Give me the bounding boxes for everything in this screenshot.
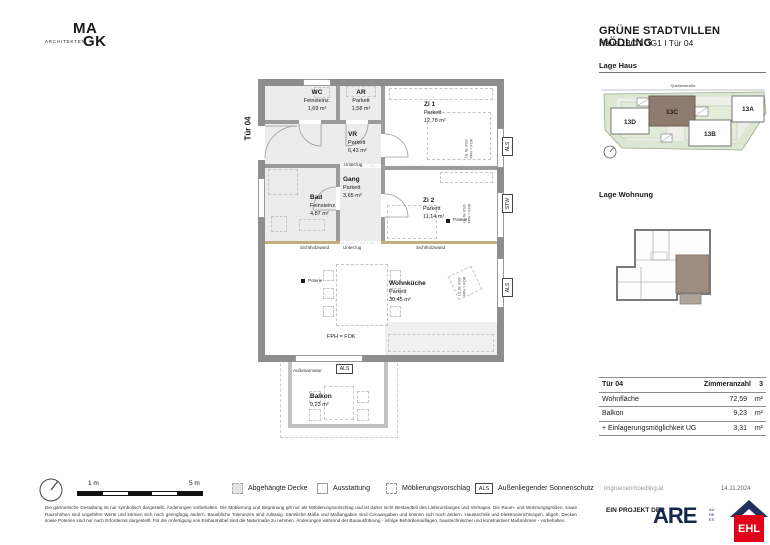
room-area: 30,45 m² bbox=[389, 296, 459, 304]
magk-logo-gk: GK bbox=[83, 35, 107, 48]
table-door-label: Tür 04 bbox=[602, 381, 704, 388]
unit-location-plan bbox=[607, 222, 727, 312]
window-note-line2: FPH = FOK bbox=[468, 194, 473, 234]
scale-segment bbox=[177, 492, 202, 495]
room-label-wohnkueche: Wohnküche Parkett 30,45 m² bbox=[389, 280, 459, 304]
table-rooms-value: 3 bbox=[751, 381, 763, 388]
wall-interior bbox=[265, 164, 340, 168]
row-label: + Einlagerungsmöglichkeit UG bbox=[602, 425, 717, 432]
room-label-gang: Gang Parkett 3,65 m² bbox=[343, 176, 393, 200]
legend-als-box: ALS bbox=[475, 483, 493, 494]
sichtholzwand-label: Sichtholzwand bbox=[416, 245, 445, 250]
row-value: 72,59 bbox=[717, 396, 747, 403]
furniture-bathtub bbox=[268, 169, 298, 195]
scale-segment bbox=[128, 492, 153, 495]
scale-segment bbox=[103, 492, 128, 495]
room-name: WC bbox=[294, 89, 340, 97]
window-note-line2: FPH = FOK bbox=[470, 129, 475, 169]
furniture-washing-machine bbox=[271, 216, 287, 232]
room-area: 6,43 m² bbox=[348, 147, 398, 155]
furniture-dining-table bbox=[336, 264, 388, 326]
wall-exterior-top bbox=[258, 79, 504, 86]
room-name: Wohnküche bbox=[389, 280, 459, 288]
column-marker bbox=[301, 279, 305, 283]
are-logo: ARE AU RE ES bbox=[653, 503, 733, 535]
aussenarmatur-label: Außenarmatur bbox=[293, 368, 322, 373]
room-floor: Parkett bbox=[424, 109, 484, 117]
room-area: 1,69 m² bbox=[294, 105, 340, 113]
room-floor: Parkett bbox=[389, 288, 459, 296]
compass-needle bbox=[51, 481, 58, 490]
row-value: 3,31 bbox=[717, 425, 747, 432]
site-plan: Quellenstraße 13D 13C 13B 13A bbox=[597, 80, 769, 162]
room-name: VR bbox=[348, 131, 398, 139]
room-area: 4,87 m² bbox=[310, 210, 365, 218]
scale-segment bbox=[152, 492, 177, 495]
unterzug-label: Unterzug bbox=[344, 162, 362, 167]
balcony-glass-door bbox=[295, 355, 363, 362]
sichtholzwand-label: Sichtholzwand bbox=[300, 245, 329, 250]
als-box: ALS bbox=[502, 278, 513, 297]
table-row: Balkon 9,23 m² bbox=[599, 406, 766, 421]
room-name: Zi 1 bbox=[424, 101, 484, 109]
are-logo-subtext: AU RE ES bbox=[709, 507, 715, 522]
building-label-13a: 13A bbox=[742, 106, 754, 113]
room-area: 9,23 m² bbox=[310, 401, 360, 409]
scale-label-5m: 5 m bbox=[189, 480, 200, 487]
stw-box: STW bbox=[502, 194, 513, 213]
door-gap-entrance bbox=[258, 126, 265, 160]
table-row: Wohnfläche 72,59 m² bbox=[599, 392, 766, 407]
legend-label-ausstattung: Ausstattung bbox=[333, 485, 370, 492]
furniture-chair bbox=[390, 306, 401, 317]
room-floor: Feinsteinz. bbox=[294, 97, 340, 105]
furniture-chair bbox=[309, 409, 321, 421]
furniture-shelf bbox=[440, 172, 493, 183]
window-note: UL fix VSG FPH = FOK bbox=[465, 129, 478, 169]
disclaimer-text: Die gärtnerische Gestaltung ist nur symb… bbox=[45, 505, 577, 525]
lage-haus-divider bbox=[599, 72, 766, 73]
street-label: Quellenstraße bbox=[670, 83, 696, 88]
building-label-13c: 13C bbox=[666, 109, 678, 116]
legend-label-sonnenschutz: Außenliegender Sonnenschutz bbox=[498, 485, 594, 492]
table-rooms-label: Zimmeranzahl bbox=[704, 381, 751, 388]
furniture-wardrobe bbox=[389, 88, 493, 100]
wall-interior bbox=[381, 166, 497, 170]
furniture-kitchen-counter bbox=[388, 334, 494, 352]
magk-logo: MA GK ARCHITEKTEN bbox=[45, 22, 165, 58]
table-header-row: Tür 04 Zimmeranzahl 3 bbox=[599, 377, 766, 392]
sichtholzwand-wall bbox=[265, 241, 340, 244]
legend-swatch-ausstattung bbox=[317, 483, 328, 494]
page-subtitle: Haus 13C I OG1 I Tür 04 bbox=[599, 38, 693, 48]
magk-logo-architekten: ARCHITEKTEN bbox=[45, 39, 86, 44]
furniture-washbasin bbox=[299, 219, 325, 231]
als-box: ALS bbox=[336, 364, 353, 374]
unit-highlight bbox=[676, 255, 709, 293]
legend-label-moeblierung: Möblierungsvorschlag bbox=[402, 485, 470, 492]
unit-door-label: Tür 04 bbox=[244, 108, 257, 150]
website-text: imgruenenmoedling.at bbox=[604, 486, 663, 492]
room-name: AR bbox=[338, 89, 384, 97]
room-label-balkon: Balkon 9,23 m² bbox=[310, 393, 360, 409]
room-name: Balkon bbox=[310, 393, 360, 401]
sichtholzwand-wall bbox=[381, 241, 497, 244]
window-note: UL fix VSG FPH = FOK bbox=[463, 194, 476, 234]
room-floor: Parkett bbox=[348, 139, 398, 147]
row-value: 9,23 bbox=[717, 410, 747, 417]
als-box: ALS bbox=[502, 137, 513, 156]
compass-needle bbox=[610, 147, 614, 152]
are-logo-text: ARE bbox=[653, 503, 696, 529]
room-area: 3,65 m² bbox=[343, 192, 393, 200]
room-floor: Parkett bbox=[343, 184, 393, 192]
room-label-zi1: Zi 1 Parkett 12,78 m² bbox=[424, 101, 484, 125]
unterzug-label: Unterzug bbox=[343, 245, 361, 250]
room-label-vr: VR Parkett 6,43 m² bbox=[348, 131, 398, 155]
door-gap-wc bbox=[299, 120, 321, 124]
window-note-line2: FPH = FOK bbox=[463, 267, 468, 307]
row-unit: m² bbox=[747, 396, 763, 403]
furniture-chair bbox=[357, 409, 369, 421]
floorplan-sheet: { "brand": { "architekten": "ARCHITEKTEN… bbox=[0, 0, 770, 545]
lage-haus-title: Lage Haus bbox=[599, 61, 637, 70]
building-label-13b: 13B bbox=[704, 131, 716, 138]
scale-label-1m: 1 m bbox=[88, 480, 99, 487]
lage-wohnung-title: Lage Wohnung bbox=[599, 190, 653, 199]
poterie-label: Poterie bbox=[308, 278, 322, 283]
ehl-logo-text: EHL bbox=[734, 515, 764, 542]
compass-icon bbox=[35, 476, 65, 504]
row-unit: m² bbox=[747, 425, 763, 432]
row-label: Wohnfläche bbox=[602, 396, 717, 403]
room-label-ar: AR Parkett 1,58 m² bbox=[338, 89, 384, 113]
room-area: 1,58 m² bbox=[338, 105, 384, 113]
window-note: UL fix VSG FPH = FOK bbox=[458, 267, 471, 307]
unit-data-table: Tür 04 Zimmeranzahl 3 Wohnfläche 72,59 m… bbox=[599, 377, 766, 436]
table-row: + Einlagerungsmöglichkeit UG 3,31 m² bbox=[599, 421, 766, 436]
scale-segment bbox=[78, 492, 103, 495]
furniture-chair bbox=[323, 288, 334, 299]
room-floor: Parkett bbox=[338, 97, 384, 105]
fph-fok-label: FPH = FOK bbox=[327, 334, 356, 340]
furniture-chair bbox=[323, 306, 334, 317]
room-area: 12,78 m² bbox=[424, 117, 484, 125]
door-gap-ar bbox=[346, 120, 368, 124]
legend-label-ceiling: Abgehängte Decke bbox=[248, 485, 308, 492]
ehl-logo: EHL bbox=[729, 500, 769, 545]
window-bad bbox=[258, 178, 265, 218]
furniture-chair bbox=[323, 270, 334, 281]
building-label-13d: 13D bbox=[624, 119, 636, 126]
unit-balcony bbox=[680, 294, 701, 304]
row-label: Balkon bbox=[602, 410, 717, 417]
legend-swatch-moeblierung bbox=[386, 483, 397, 494]
scale-bar bbox=[77, 491, 203, 496]
room-label-wc: WC Feinsteinz. 1,69 m² bbox=[294, 89, 340, 113]
window-wc bbox=[303, 79, 331, 86]
date-text: 14.11.2024 bbox=[721, 486, 751, 492]
are-sub-line: ES bbox=[709, 517, 715, 522]
row-unit: m² bbox=[747, 410, 763, 417]
room-name: Gang bbox=[343, 176, 393, 184]
legend-swatch-ceiling bbox=[232, 483, 243, 494]
room-floor: Feinsteinz. bbox=[310, 202, 365, 210]
